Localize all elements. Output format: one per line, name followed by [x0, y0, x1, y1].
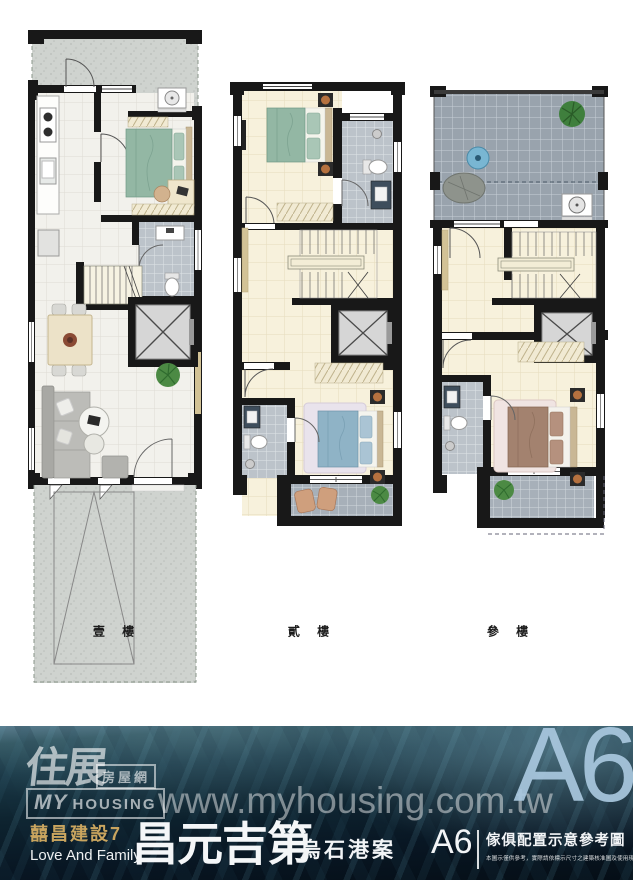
floor-plan-1-drawing — [28, 30, 202, 690]
shower-icon — [373, 130, 382, 139]
floor-plan-3 — [430, 84, 608, 536]
plant-icon — [156, 363, 180, 387]
kitchen-counter — [37, 96, 59, 256]
floor-1-label: 壹 樓 — [93, 623, 141, 640]
unit-label: A6 — [431, 823, 473, 862]
air-conditioner-icon — [562, 194, 592, 220]
plan-note-disclaimer: 本圖示僅供參考，實際請依標示尺寸之建築核准圖及使用現況為準。 — [486, 854, 631, 862]
toilet-icon — [444, 416, 450, 430]
fridge-icon — [38, 230, 59, 256]
developer-block: 囍昌建設7 Love And Family — [30, 820, 141, 864]
developer-name: 囍昌建設7 — [30, 820, 141, 846]
shower-icon — [446, 442, 455, 451]
plan-note-title: 傢俱配置示意參考圖 — [486, 829, 631, 850]
bed-icon — [267, 108, 332, 162]
logo-site-box: 房屋網 — [96, 764, 156, 789]
flyer-page: 壹 樓 貳 樓 參 樓 住展 房屋網 MYHOUSING www.myhousi… — [0, 0, 633, 880]
closet-icon — [315, 363, 383, 383]
closet-icon — [132, 204, 194, 215]
unit-watermark: A6 — [513, 726, 633, 811]
bed-icon — [508, 407, 577, 467]
floor-2-label: 貳 樓 — [288, 623, 336, 640]
floor-3-label: 參 樓 — [487, 623, 535, 640]
toilet-icon — [244, 435, 250, 449]
closet-icon — [518, 342, 584, 362]
bed-icon — [318, 411, 383, 467]
lightwell — [342, 91, 393, 113]
closet-icon — [277, 203, 333, 221]
logo-my: MY — [34, 791, 68, 814]
dining-table-icon — [48, 304, 92, 376]
balcony-chair-icon — [316, 487, 337, 512]
divider-line — [477, 830, 479, 869]
developer-slogan: Love And Family — [30, 847, 141, 864]
floor-plan-1 — [28, 30, 202, 690]
driveway — [34, 485, 196, 683]
project-name: 昌元吉第 — [132, 808, 312, 874]
case-name: 烏石港案 — [300, 834, 396, 864]
closet-icon — [128, 117, 168, 127]
footer-band: 住展 房屋網 MYHOUSING www.myhousing.com.tw A6… — [0, 726, 633, 880]
plan-note: 傢俱配置示意參考圖 本圖示僅供參考，實際請依標示尺寸之建築核准圖及使用現況為準。 — [486, 829, 631, 862]
elevator-icon — [331, 303, 395, 363]
air-conditioner-icon — [158, 88, 186, 112]
floor-plan-3-drawing — [430, 84, 608, 536]
floor-plan-2 — [230, 82, 405, 526]
elevator-icon — [128, 297, 198, 367]
floor-plan-2-drawing — [230, 82, 405, 526]
roof-terrace — [434, 94, 604, 220]
shower-icon — [246, 460, 255, 469]
tv-icon — [242, 120, 246, 150]
